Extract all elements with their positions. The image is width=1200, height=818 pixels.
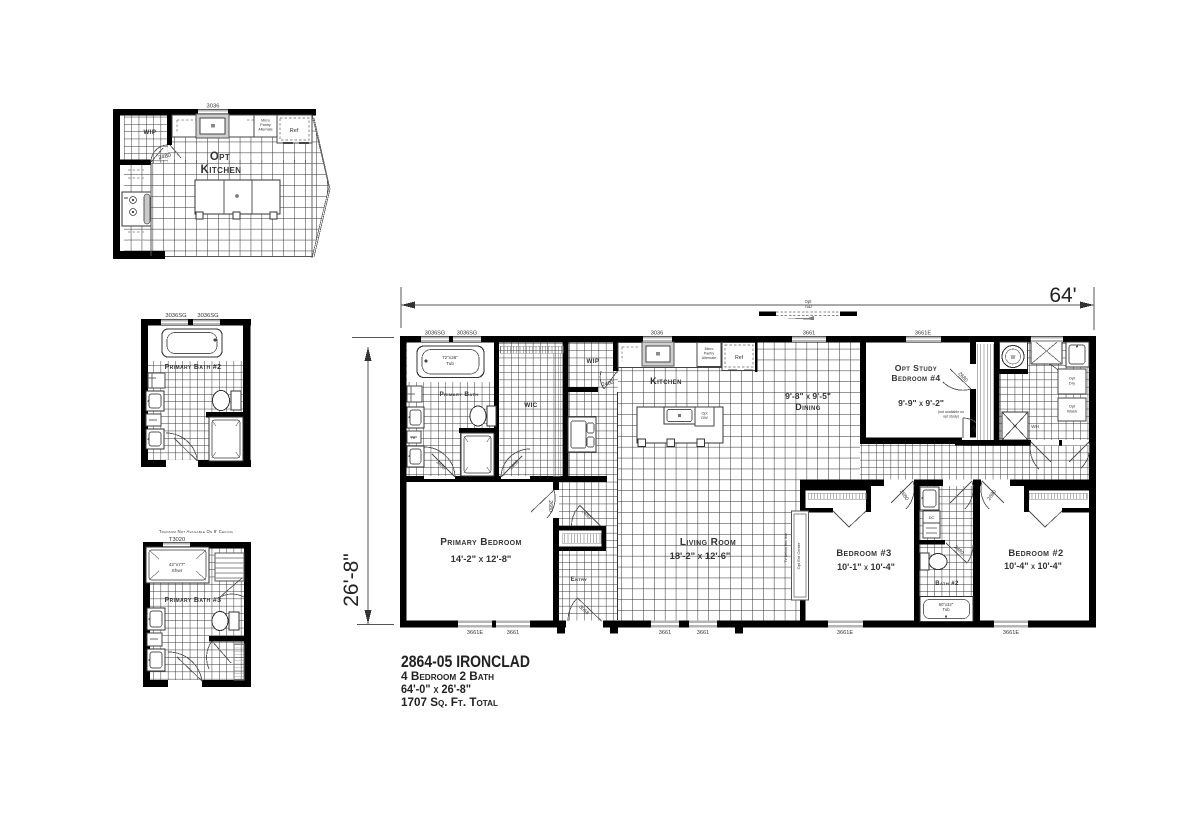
svg-text:3036SG: 3036SG	[165, 313, 187, 319]
svg-text:Wash: Wash	[1067, 409, 1077, 414]
svg-text:FB: FB	[411, 436, 416, 440]
svg-text:Micro: Micro	[705, 347, 714, 351]
svg-text:Living Room: Living Room	[680, 537, 736, 548]
svg-text:3661E: 3661E	[915, 331, 931, 337]
svg-text:3661: 3661	[697, 630, 709, 636]
svg-text:3036SG: 3036SG	[197, 313, 219, 319]
svg-text:64': 64'	[1049, 284, 1076, 307]
svg-text:Primary Bath #3: Primary Bath #3	[165, 597, 222, 604]
svg-text:3036: 3036	[207, 104, 220, 110]
svg-text:Bedroom #3: Bedroom #3	[836, 547, 891, 558]
svg-text:WH: WH	[1031, 424, 1039, 429]
svg-text:opt study): opt study)	[943, 415, 959, 419]
svg-text:26'-8": 26'-8"	[340, 553, 363, 607]
svg-text:Pantry: Pantry	[260, 123, 271, 127]
svg-text:Dining: Dining	[795, 402, 821, 412]
svg-text:Tub: Tub	[446, 361, 454, 366]
svg-text:72"x36": 72"x36"	[442, 355, 458, 360]
svg-text:Opt: Opt	[701, 412, 708, 416]
svg-text:18'-2" x 12'-6": 18'-2" x 12'-6"	[670, 550, 731, 561]
svg-text:4 Bedroom 2 Bath: 4 Bedroom 2 Bath	[401, 671, 494, 683]
svg-text:Bedroom #2: Bedroom #2	[1008, 547, 1063, 558]
svg-text:(not available on: (not available on	[938, 410, 964, 414]
svg-text:10'-4" x 10'-4": 10'-4" x 10'-4"	[1004, 561, 1062, 571]
svg-text:Tub: Tub	[942, 607, 950, 612]
svg-text:Primary Bedroom: Primary Bedroom	[440, 537, 522, 548]
svg-text:Opt Ent Center: Opt Ent Center	[796, 542, 801, 569]
svg-text:9'-8" x 9'-5": 9'-8" x 9'-5"	[785, 391, 831, 401]
svg-text:42"x77": 42"x77"	[169, 562, 186, 568]
svg-text:3036SG: 3036SG	[425, 331, 446, 337]
svg-text:Dry: Dry	[1069, 381, 1075, 386]
svg-text:Shwr: Shwr	[172, 568, 183, 574]
svg-text:Kitchen: Kitchen	[650, 376, 682, 386]
svg-text:Bedroom #4: Bedroom #4	[891, 373, 940, 383]
svg-text:3661: 3661	[659, 630, 671, 636]
svg-text:Opt Study: Opt Study	[895, 363, 937, 373]
svg-text:3661E: 3661E	[1003, 630, 1019, 636]
svg-text:T3020: T3020	[169, 537, 185, 543]
svg-text:W: W	[1011, 355, 1016, 361]
svg-text:Ref: Ref	[290, 128, 299, 134]
svg-text:WIP: WIP	[587, 358, 600, 365]
svg-text:Primary Bath #2: Primary Bath #2	[165, 364, 222, 371]
svg-text:Ref: Ref	[735, 355, 744, 361]
svg-text:Opt: Opt	[210, 151, 230, 163]
svg-text:3661E: 3661E	[467, 630, 483, 636]
svg-text:3661E: 3661E	[837, 630, 853, 636]
svg-text:DC: DC	[929, 515, 935, 520]
svg-text:1707 Sq. Ft. Total: 1707 Sq. Ft. Total	[401, 697, 498, 709]
svg-text:Entry: Entry	[571, 577, 588, 583]
svg-text:Pantry: Pantry	[704, 352, 715, 356]
svg-text:TV below this line: TV below this line	[784, 533, 788, 563]
svg-text:3661: 3661	[803, 331, 815, 337]
svg-text:3036SG: 3036SG	[457, 331, 478, 337]
svg-text:Transom Not Available On 8' Ce: Transom Not Available On 8' Ceiling	[159, 529, 234, 534]
svg-text:2864-05 IRONCLAD: 2864-05 IRONCLAD	[401, 653, 530, 671]
svg-text:DW: DW	[701, 416, 708, 420]
svg-text:14'-2" x 12'-8": 14'-2" x 12'-8"	[451, 553, 512, 564]
svg-text:Micro: Micro	[261, 119, 270, 123]
svg-text:3661: 3661	[507, 630, 519, 636]
svg-text:Alternate: Alternate	[702, 356, 716, 360]
svg-text:64'-0" x 26'-8": 64'-0" x 26'-8"	[401, 684, 471, 696]
svg-text:Bath #2: Bath #2	[935, 581, 959, 587]
svg-text:2680: 2680	[547, 500, 553, 512]
svg-text:WIP: WIP	[144, 129, 157, 136]
svg-text:9'-9" x 9'-2": 9'-9" x 9'-2"	[898, 398, 944, 408]
svg-text:10'-1" x 10'-4": 10'-1" x 10'-4"	[837, 562, 895, 572]
svg-text:Kitchen: Kitchen	[201, 164, 242, 176]
svg-text:WIC: WIC	[524, 402, 538, 409]
svg-text:Alternate: Alternate	[258, 128, 272, 132]
svg-text:Primary Bath: Primary Bath	[439, 391, 478, 398]
svg-text:3036: 3036	[651, 331, 663, 337]
